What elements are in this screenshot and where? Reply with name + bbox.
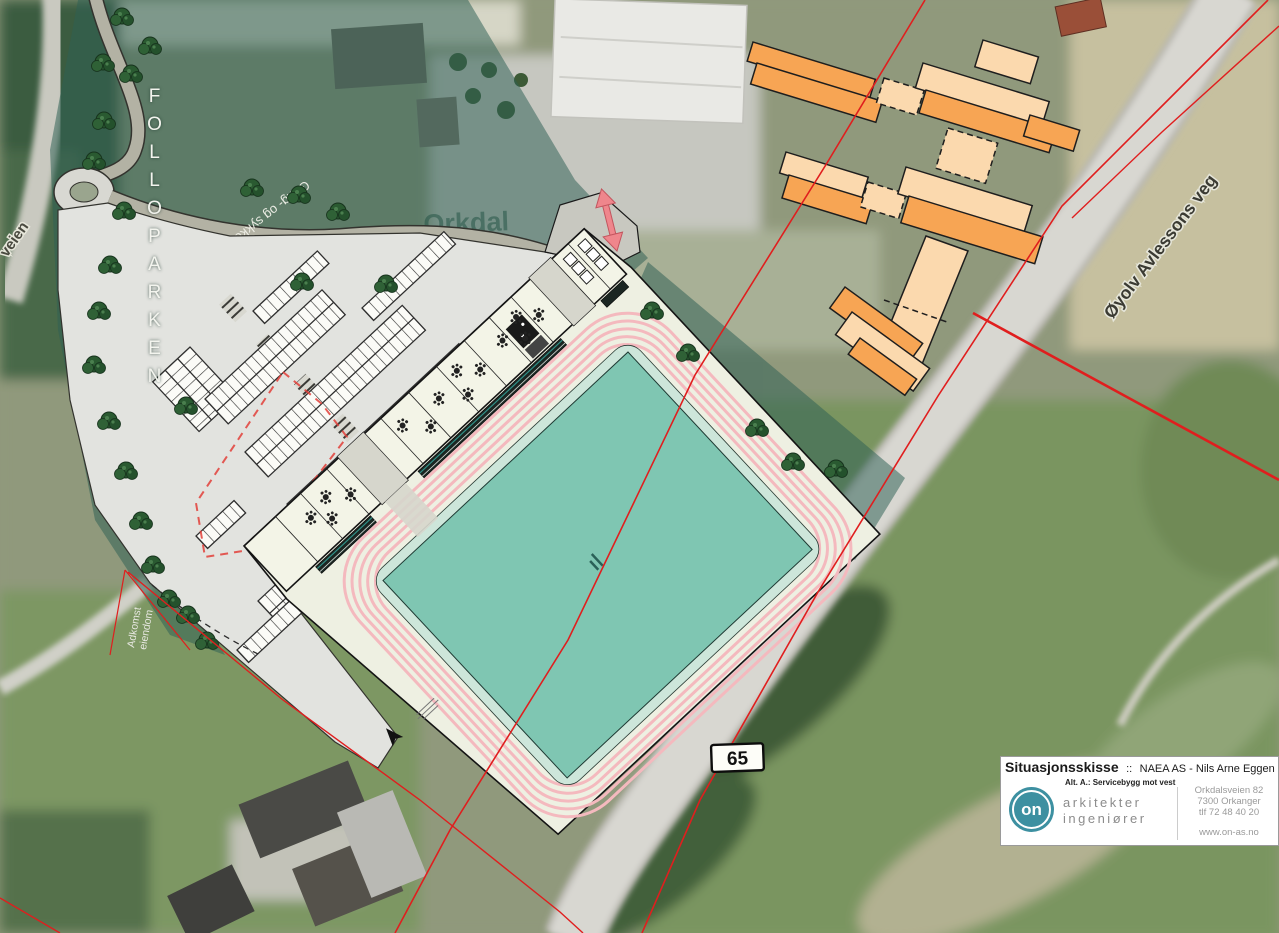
route-shield-65: 65	[711, 743, 764, 772]
route-number: 65	[727, 748, 749, 770]
firm-name-line2: ingeniører	[1063, 811, 1147, 827]
title-block-divider	[1177, 787, 1178, 840]
aerial-building-large	[551, 0, 747, 123]
firm-name-line1: arkitekter	[1063, 795, 1147, 811]
firm-website: www.on-as.no	[1182, 828, 1276, 839]
title-separator: ::	[1126, 763, 1132, 775]
drawing-title: Situasjonsskisse	[1005, 759, 1119, 775]
drawing-title-line: Situasjonsskisse :: NAEA AS - Nils Arne …	[1001, 757, 1278, 777]
project-name: NAEA AS - Nils Arne Eggen arena	[1140, 763, 1279, 775]
address-phone: tlf 72 48 40 20	[1182, 808, 1276, 819]
firm-address: Orkdalsveien 82 7300 Orkanger tlf 72 48 …	[1182, 786, 1276, 839]
park-name-label: FOLLOPARKEN	[143, 86, 165, 394]
title-block: Situasjonsskisse :: NAEA AS - Nils Arne …	[1000, 756, 1279, 846]
site-plan: Orkdal vidaregåande Øyolv Avlessons veg …	[0, 0, 1279, 933]
firm-name: arkitekter ingeniører	[1063, 795, 1147, 826]
firm-logo: on	[1009, 787, 1054, 832]
firm-logo-text: on	[1012, 790, 1051, 829]
